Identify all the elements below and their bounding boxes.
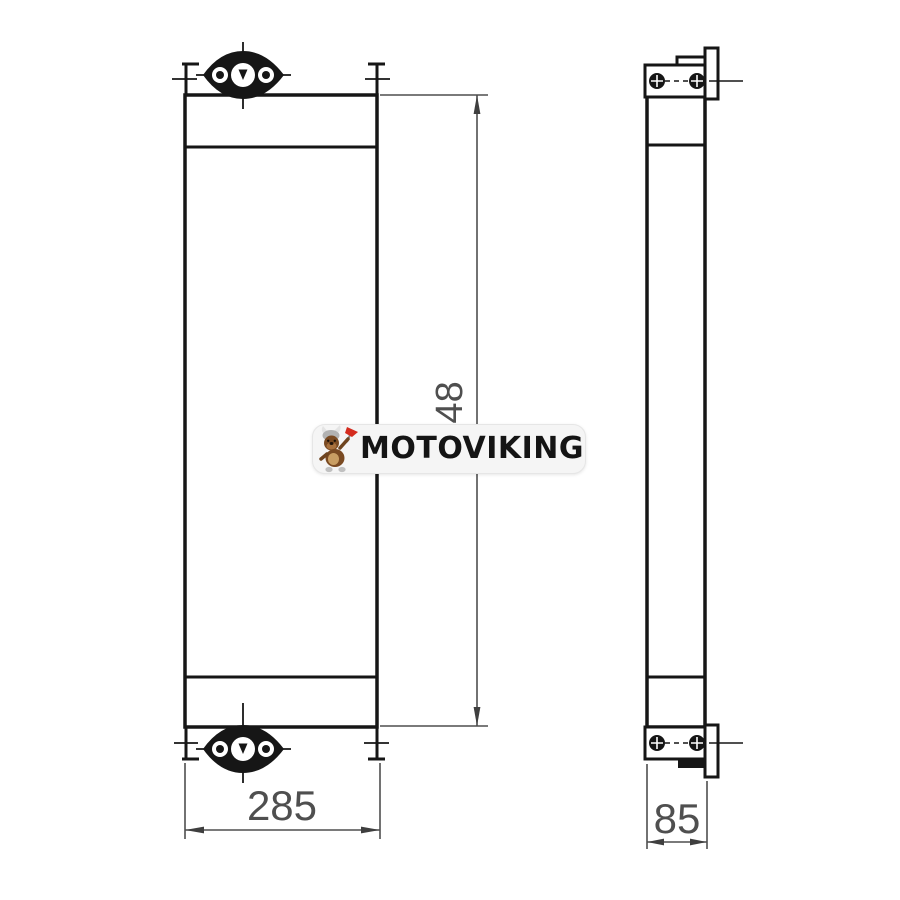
side-bottom-bracket bbox=[645, 725, 743, 777]
brand-watermark: MOTOVIKING bbox=[312, 424, 586, 474]
front-body-outline bbox=[185, 95, 377, 727]
viking-mascot-icon bbox=[318, 425, 360, 473]
top-port-flange-icon bbox=[196, 42, 291, 109]
side-view bbox=[645, 48, 743, 777]
front-top-left-pin bbox=[172, 64, 199, 95]
front-bottom-left-pin bbox=[174, 727, 199, 759]
dimension-depth-label: 85 bbox=[617, 796, 737, 842]
bottom-port-flange-icon bbox=[196, 703, 291, 783]
front-bottom-right-pin bbox=[364, 727, 389, 759]
side-top-bracket bbox=[645, 48, 743, 99]
front-top-right-pin bbox=[365, 64, 390, 95]
dimension-width-label: 285 bbox=[202, 783, 362, 829]
side-body-outline bbox=[647, 95, 705, 727]
product-drawing-image: 285 85 948 MOT bbox=[0, 0, 900, 900]
front-view bbox=[172, 64, 390, 759]
brand-name: MOTOVIKING bbox=[360, 425, 594, 473]
